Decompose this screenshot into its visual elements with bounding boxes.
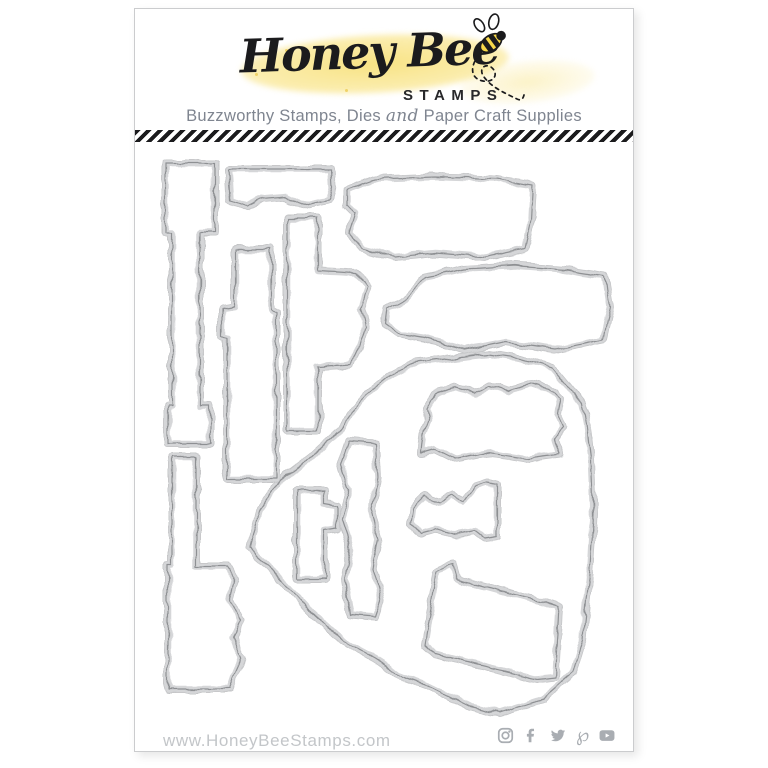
die-piece-wavy-vertical-trim: [341, 441, 381, 617]
die-piece-cloud-label: [421, 384, 563, 459]
die-piece-tall-strip-with-head: [165, 164, 215, 444]
die-piece-vertical-strip: [222, 249, 276, 479]
die-piece-banner-with-side-tab: [287, 218, 368, 431]
instagram-icon[interactable]: [497, 727, 514, 744]
product-card: Honey Bee STAMPS: [134, 8, 634, 752]
youtube-icon[interactable]: [598, 727, 616, 744]
twitter-icon[interactable]: [549, 727, 567, 744]
die-piece-small-wavy-banner: [229, 169, 332, 207]
die-piece-large-cloud-banner: [347, 177, 533, 257]
social-icons: ℘: [497, 727, 616, 744]
die-set-graphic: [135, 9, 635, 753]
die-piece-wide-bottom-strip: [168, 457, 242, 689]
facebook-icon[interactable]: [523, 727, 540, 744]
pinterest-icon[interactable]: ℘: [576, 727, 589, 744]
website-url[interactable]: www.HoneyBeeStamps.com: [163, 731, 391, 751]
die-piece-wide-cloud-banner: [385, 266, 610, 350]
